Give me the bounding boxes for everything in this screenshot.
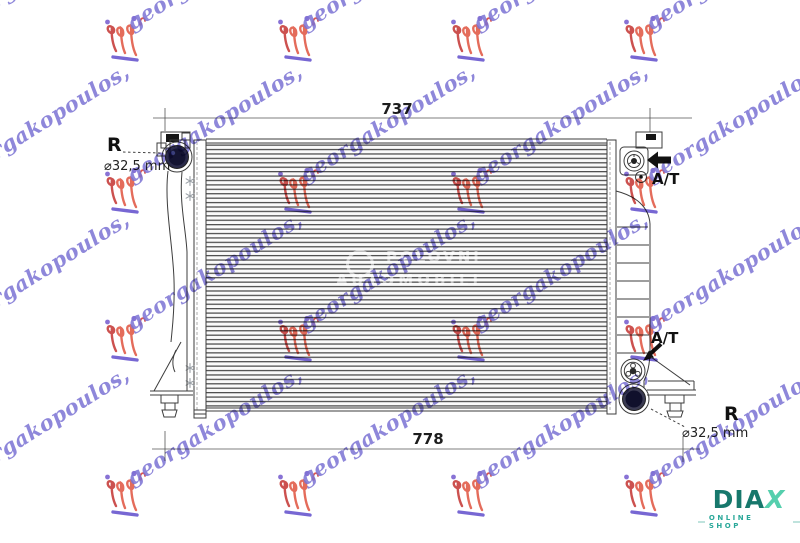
radius-label: R <box>107 134 122 156</box>
tagline-dash-icon <box>793 521 800 523</box>
dimension-bottom-value: 778 <box>412 430 443 448</box>
diax-tagline: ONLINE SHOP <box>698 514 800 530</box>
left-header-band <box>186 140 206 418</box>
left-side-profile <box>150 171 193 417</box>
diax-brand: DIAX <box>713 487 786 512</box>
right-header-band <box>607 140 616 414</box>
diax-brand-x: X <box>765 485 785 514</box>
diameter-label: ⌀32,5 mm <box>682 426 748 441</box>
diax-logo: DIAX ONLINE SHOP <box>698 474 800 543</box>
snowflake-icon <box>186 192 194 201</box>
bottom-right-outlet-port <box>619 384 649 414</box>
at-label-bottom: A/T <box>651 329 679 347</box>
dimension-top-value: 737 <box>381 100 412 118</box>
diax-tagline-text: ONLINE SHOP <box>709 514 789 530</box>
right-foot-bracket <box>647 357 696 417</box>
diameter-label: ⌀32,5 mm <box>104 159 170 174</box>
top-left-callout: R ⌀32,5 mm <box>104 134 170 174</box>
flow-arrow-left-icon <box>647 152 671 169</box>
tagline-dash-icon <box>698 521 705 523</box>
dimension-top-width: 737 <box>153 100 692 132</box>
bottom-right-small-port <box>621 359 645 383</box>
radiator-core <box>206 139 607 411</box>
snowflake-icon <box>186 177 194 186</box>
diax-brand-dia: DIA <box>713 485 765 514</box>
top-right-at-port: A/T <box>620 147 680 188</box>
dimension-bottom-width: 778 <box>152 430 700 462</box>
at-label-top: A/T <box>652 170 680 188</box>
radiator-technical-drawing: 737 778 <box>0 0 800 543</box>
radius-label: R <box>724 403 739 425</box>
bottom-right-callout: R ⌀32,5 mm <box>651 403 748 441</box>
top-right-mount-bracket <box>636 132 662 148</box>
bottom-right-at-callout: A/T <box>643 329 679 361</box>
radiator-product-image: 737 778 <box>0 0 800 543</box>
